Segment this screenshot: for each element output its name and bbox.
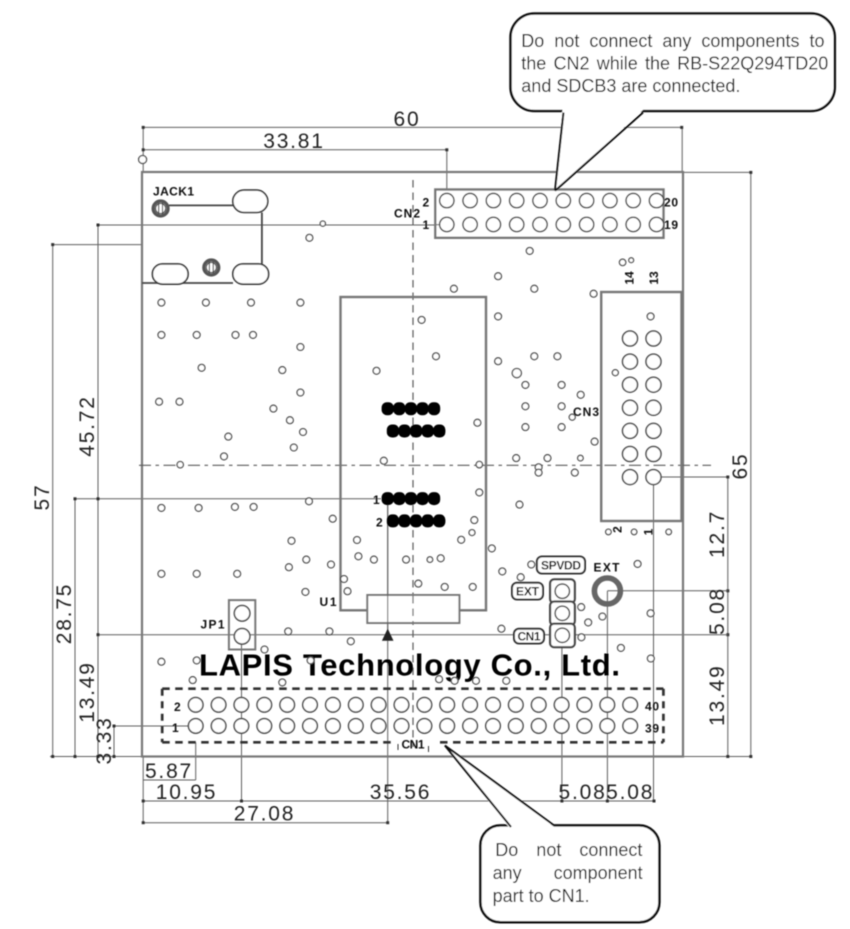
svg-text:5.08: 5.08 <box>706 587 729 635</box>
svg-text:CN3: CN3 <box>573 405 599 419</box>
svg-text:13.49: 13.49 <box>706 664 729 726</box>
svg-text:2: 2 <box>423 196 430 210</box>
svg-text:SPVDD: SPVDD <box>541 559 581 573</box>
svg-text:CN2: CN2 <box>394 207 420 221</box>
svg-text:Do not connect: Do not connect <box>495 840 642 860</box>
svg-text:the CN2 while the RB-S22Q294TD: the CN2 while the RB-S22Q294TD20 <box>521 54 828 74</box>
svg-text:CN1: CN1 <box>518 630 541 644</box>
svg-text:1: 1 <box>373 493 380 507</box>
svg-text:28.75: 28.75 <box>53 583 76 645</box>
svg-text:JP1: JP1 <box>201 618 225 632</box>
svg-text:13.49: 13.49 <box>76 661 99 723</box>
svg-text:60: 60 <box>394 108 421 131</box>
svg-text:35.56: 35.56 <box>370 781 432 804</box>
svg-text:JACK1: JACK1 <box>153 185 194 199</box>
svg-text:1: 1 <box>642 528 656 535</box>
svg-text:33.81: 33.81 <box>263 130 325 153</box>
svg-text:2: 2 <box>611 526 625 533</box>
svg-text:any component: any component <box>493 863 643 883</box>
svg-text:part to CN1.: part to CN1. <box>493 886 590 906</box>
svg-text:57: 57 <box>31 484 54 511</box>
svg-text:CN1: CN1 <box>402 738 425 752</box>
svg-text:U1: U1 <box>320 595 337 609</box>
svg-text:EXT: EXT <box>594 561 621 575</box>
svg-text:Do not connect any components: Do not connect any components to <box>521 31 824 51</box>
svg-text:10.95: 10.95 <box>156 781 218 804</box>
svg-text:45.72: 45.72 <box>76 395 99 457</box>
svg-text:5.08: 5.08 <box>559 781 607 804</box>
svg-text:5.08: 5.08 <box>606 781 654 804</box>
svg-text:and SDCB3 are connected.: and SDCB3 are connected. <box>521 76 740 96</box>
svg-text:1: 1 <box>423 218 430 232</box>
svg-text:12.7: 12.7 <box>706 510 729 558</box>
svg-text:14: 14 <box>623 271 637 285</box>
svg-text:19: 19 <box>664 218 678 232</box>
svg-text:65: 65 <box>729 453 752 480</box>
svg-text:20: 20 <box>664 196 678 210</box>
svg-text:3.33: 3.33 <box>93 716 116 764</box>
svg-text:EXT: EXT <box>516 585 540 599</box>
svg-text:39: 39 <box>645 722 659 736</box>
svg-text:2: 2 <box>376 516 383 530</box>
svg-text:2: 2 <box>174 700 181 714</box>
svg-text:27.08: 27.08 <box>234 803 296 826</box>
svg-text:40: 40 <box>645 700 659 714</box>
svg-text:13: 13 <box>647 271 661 285</box>
svg-text:5.87: 5.87 <box>145 760 193 783</box>
svg-text:1: 1 <box>172 721 179 735</box>
